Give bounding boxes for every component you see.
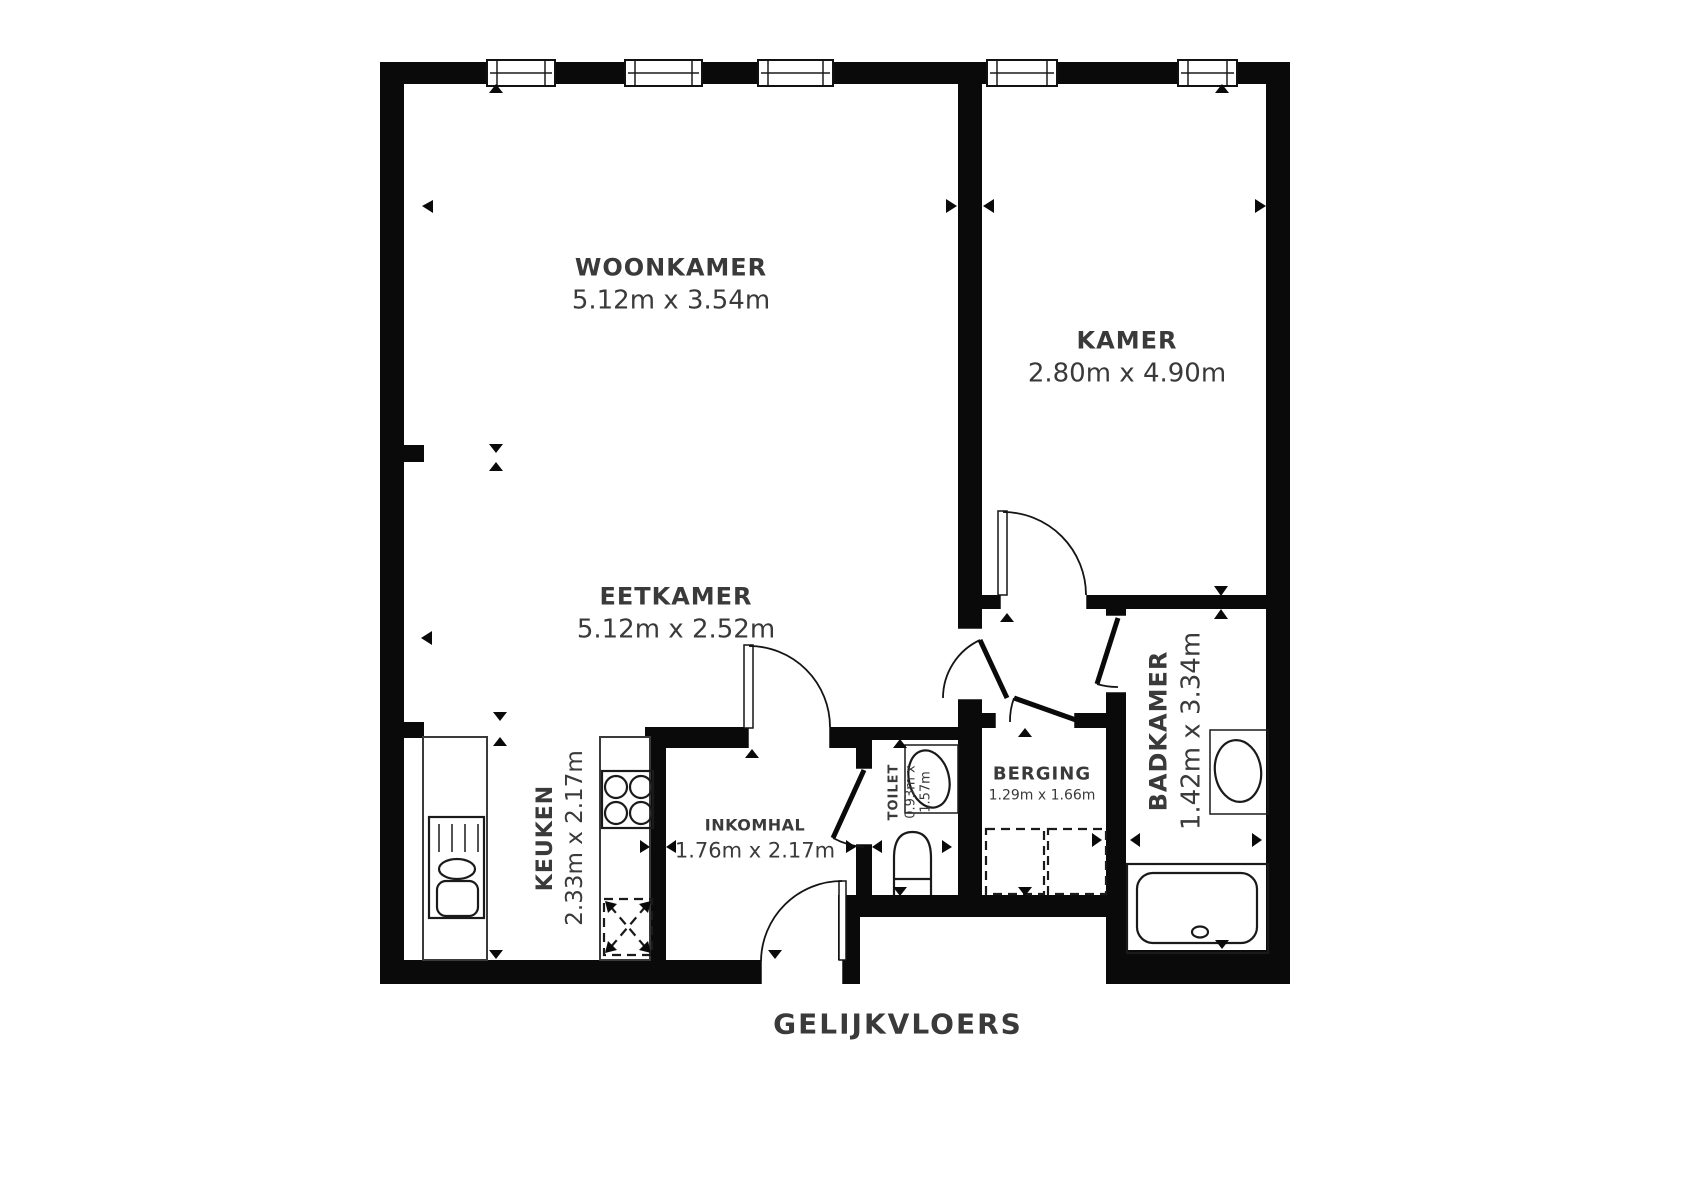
room-dims: 1.57m	[919, 771, 934, 813]
room-label-berging: BERGING 1.29m x 1.66m	[989, 765, 1096, 804]
door-eetkamer-inkomhal-icon	[744, 645, 830, 728]
room-dims: 2.33m x 2.17m	[562, 750, 588, 925]
room-name: WOONKAMER	[575, 254, 767, 282]
room-name: INKOMHAL	[705, 817, 806, 835]
toilet-icon	[894, 832, 931, 895]
bathtub-icon	[1127, 864, 1268, 953]
room-label-inkomhal: INKOMHAL 1.76m x 2.17m	[675, 817, 835, 864]
room-dims: 5.12m x 3.54m	[572, 286, 770, 316]
room-label-woonkamer: WOONKAMER 5.12m x 3.54m	[572, 254, 770, 315]
door-entry-icon	[761, 881, 846, 961]
room-name: TOILET	[888, 764, 903, 821]
washbasin-icon	[1210, 730, 1268, 814]
room-dims: 1.42m x 3.34m	[1177, 632, 1207, 830]
room-name: BADKAMER	[1145, 651, 1173, 812]
room-label-kamer: KAMER 2.80m x 4.90m	[1028, 327, 1226, 388]
door-hall-eetkamer-icon	[943, 640, 1007, 698]
floor-title: GELIJKVLOERS	[773, 1008, 1023, 1041]
room-label-badkamer: BADKAMER 1.42m x 3.34m	[1145, 632, 1206, 830]
door-kamer-icon	[998, 511, 1086, 595]
door-badkamer-icon	[1097, 618, 1118, 687]
room-dims: 1.29m x 1.66m	[989, 787, 1096, 803]
room-name: EETKAMER	[599, 583, 752, 611]
room-dims: 2.80m x 4.90m	[1028, 359, 1226, 389]
window-icon	[487, 60, 1237, 86]
room-label-toilet: TOILET 0.93m x 1.57m	[888, 764, 935, 821]
room-label-eetkamer: EETKAMER 5.12m x 2.52m	[577, 583, 775, 644]
washing-machine-space-icon	[986, 829, 1106, 894]
floorplan-canvas: WOONKAMER 5.12m x 3.54m KAMER 2.80m x 4.…	[0, 0, 1696, 1200]
room-name: BERGING	[993, 765, 1091, 786]
door-berging-icon	[1010, 698, 1076, 722]
door-toilet-icon	[833, 770, 864, 847]
room-label-keuken: KEUKEN 2.33m x 2.17m	[533, 750, 589, 925]
room-name: KAMER	[1077, 327, 1178, 355]
room-dims: 5.12m x 2.52m	[577, 615, 775, 645]
room-dims: 0.93m x	[905, 765, 920, 818]
room-name: KEUKEN	[533, 785, 558, 891]
room-dims: 1.76m x 2.17m	[675, 839, 835, 863]
